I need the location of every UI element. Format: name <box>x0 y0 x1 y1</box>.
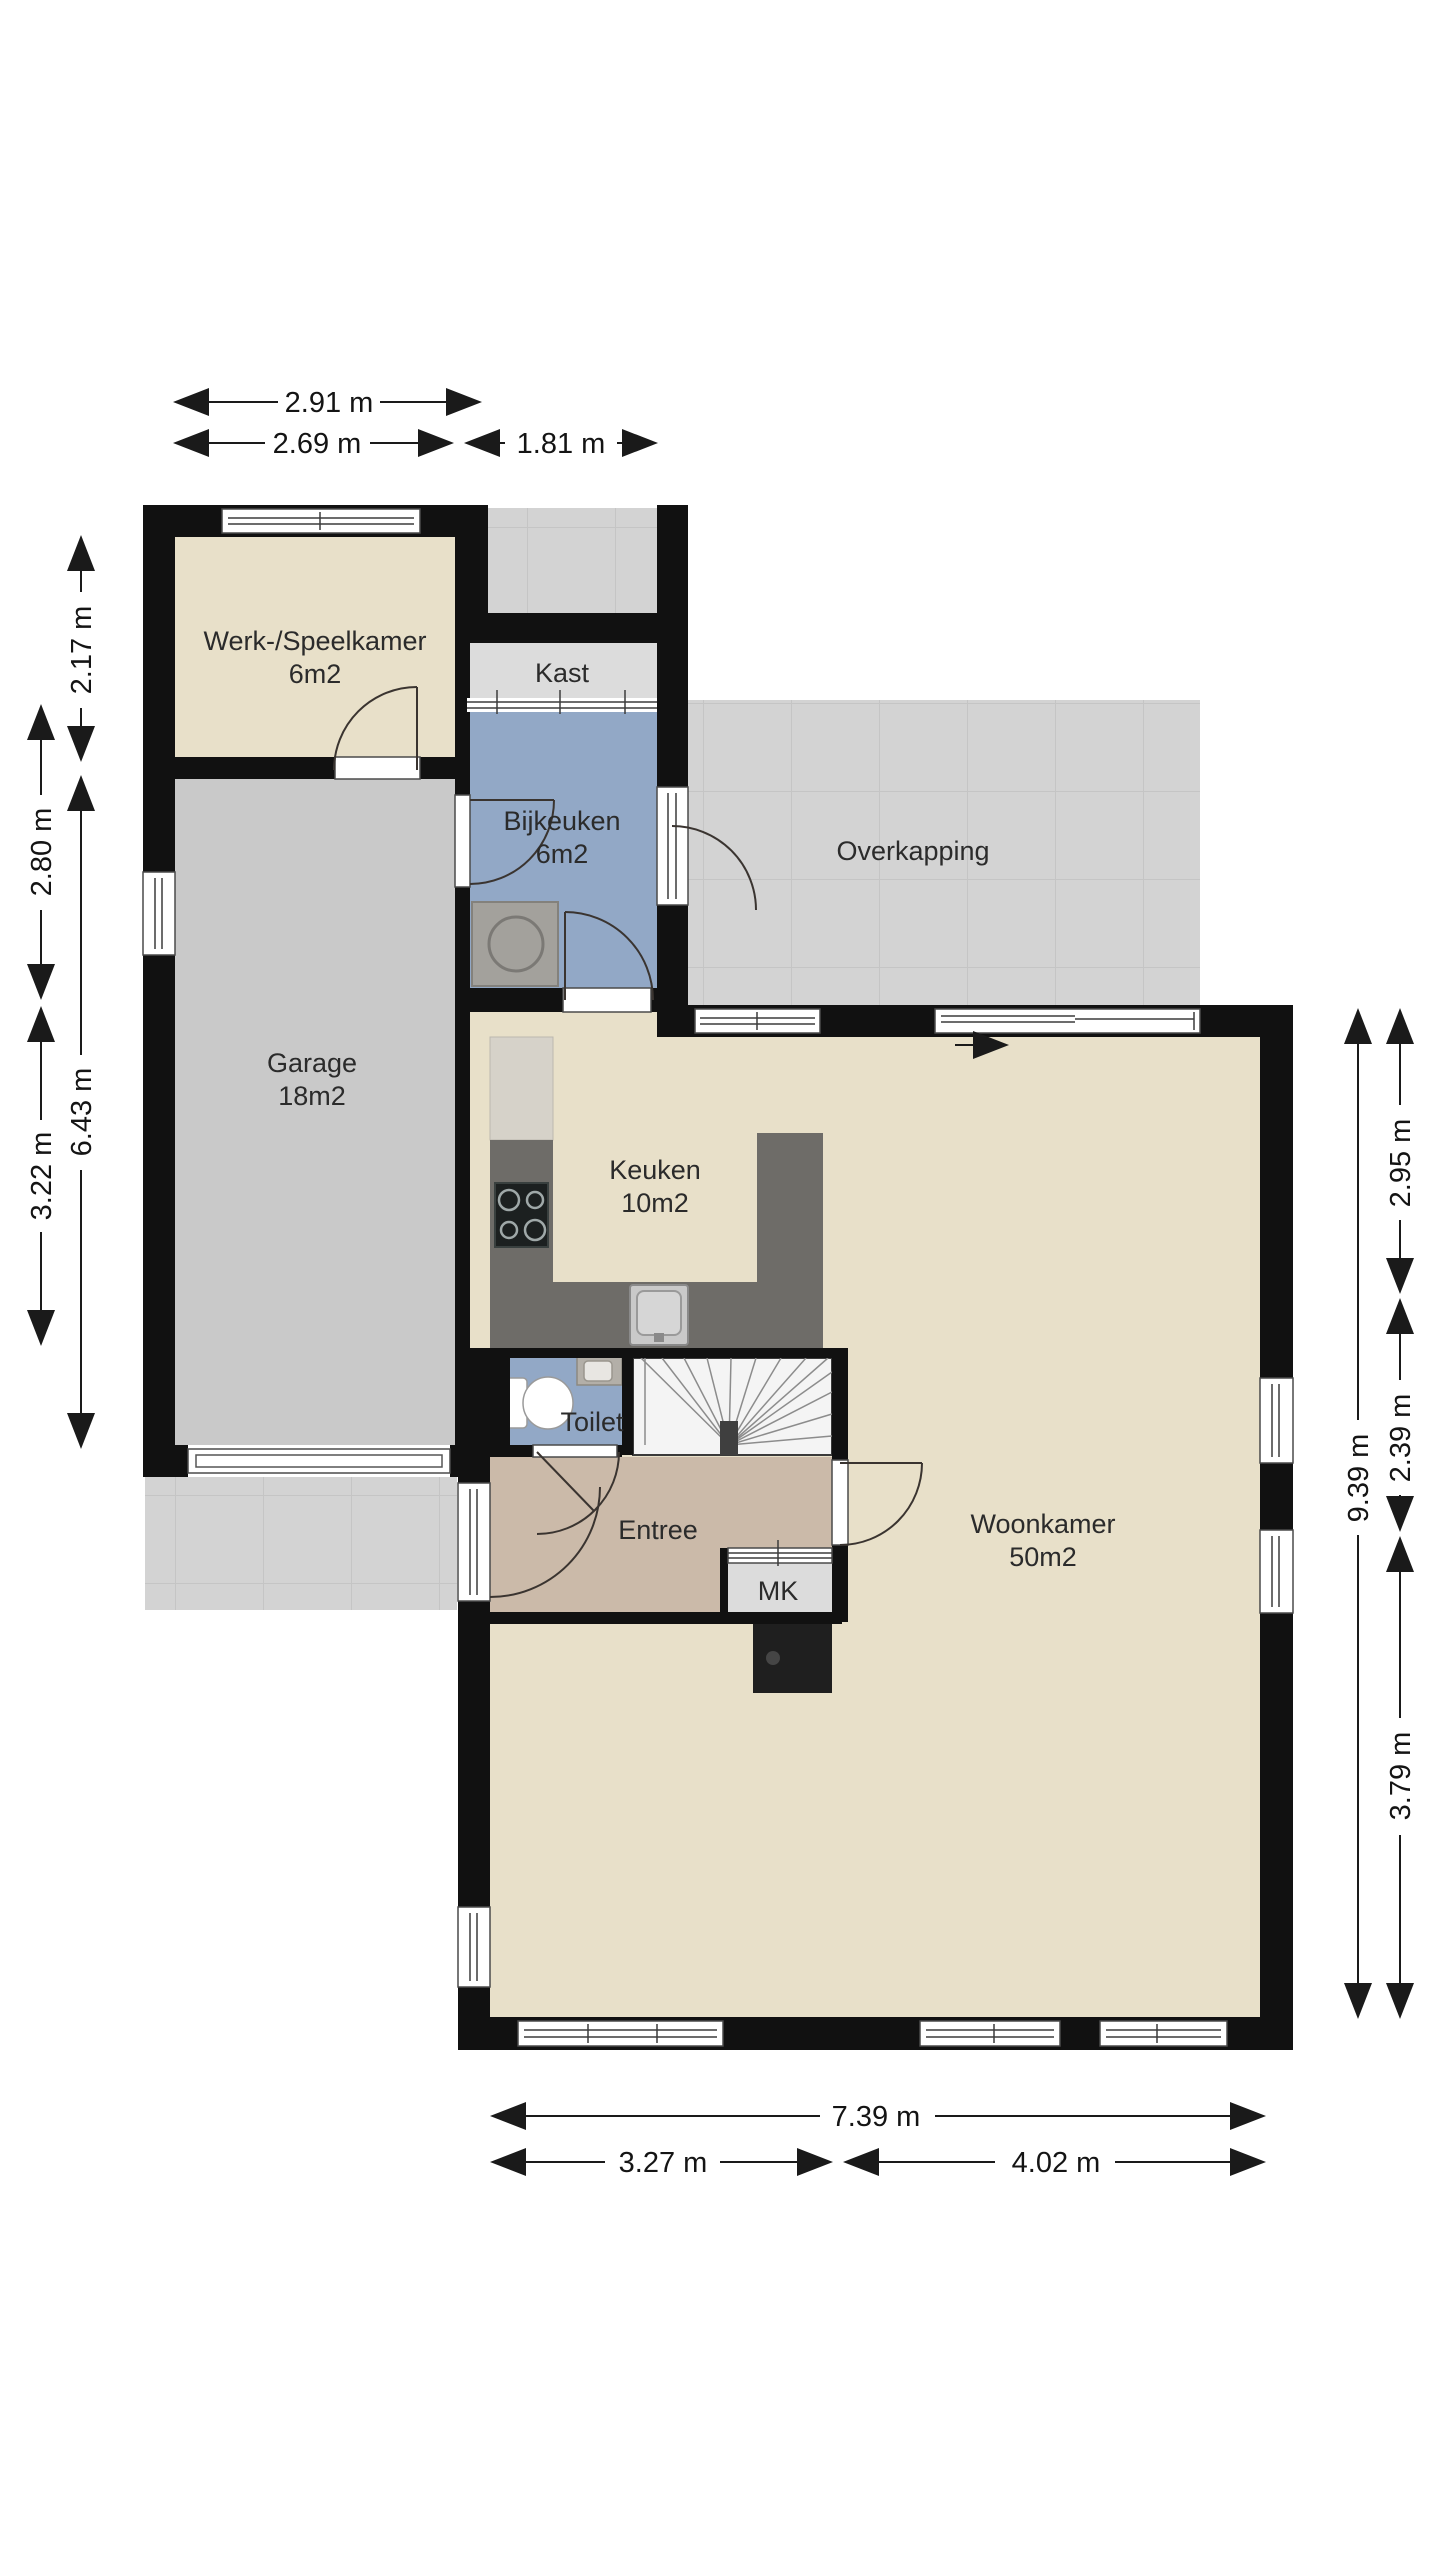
window-keuken-top <box>695 1009 820 1033</box>
door-bijkeuken-garage <box>455 795 470 887</box>
label-werkkamer-area: 6m2 <box>289 659 342 689</box>
label-bijkeuken-name: Bijkeuken <box>503 806 620 836</box>
patio-patch-tiles <box>488 508 657 613</box>
label-woonkamer-name: Woonkamer <box>970 1509 1115 1539</box>
label-woonkamer-area: 50m2 <box>1009 1542 1077 1572</box>
toilet-sink-icon <box>577 1357 622 1385</box>
kitchen-sink-icon <box>630 1285 688 1345</box>
stair-post <box>720 1421 738 1455</box>
door-toilet <box>533 1445 617 1457</box>
dim-bottom-739: 7.39 m <box>832 2101 921 2133</box>
window-werkkamer-top <box>222 509 420 533</box>
kitchen-cabinet <box>490 1037 553 1140</box>
label-overkapping: Overkapping <box>836 836 989 866</box>
dim-left-643: 6.43 m <box>66 1068 98 1157</box>
staircase <box>633 1358 832 1455</box>
dim-right-295: 2.95 m <box>1385 1119 1417 1208</box>
dim-right-939: 9.39 m <box>1343 1434 1375 1523</box>
door-werkkamer-garage <box>335 757 420 779</box>
label-bijkeuken-area: 6m2 <box>536 839 589 869</box>
label-keuken-area: 10m2 <box>621 1188 689 1218</box>
label-kast: Kast <box>535 658 590 688</box>
dim-right-379: 3.79 m <box>1385 1732 1417 1821</box>
window-woonkamer-right-1 <box>1260 1378 1293 1463</box>
door-bijkeuken-keuken <box>563 988 651 1012</box>
label-garage-area: 18m2 <box>278 1081 346 1111</box>
window-bottom-a <box>518 2021 723 2046</box>
dim-left-280: 2.80 m <box>26 808 58 897</box>
floorplan-drawing: Werk-/Speelkamer 6m2 Kast Bijkeuken 6m2 … <box>0 0 1440 2560</box>
label-garage-name: Garage <box>267 1048 357 1078</box>
label-mk: MK <box>758 1576 799 1606</box>
chimney-block <box>753 1622 832 1693</box>
label-werkkamer-name: Werk-/Speelkamer <box>203 626 426 656</box>
label-keuken-name: Keuken <box>609 1155 701 1185</box>
dim-top-291: 2.91 m <box>285 387 374 419</box>
driveway-tiles <box>145 1477 457 1610</box>
dim-top-269: 2.69 m <box>273 428 362 460</box>
door-entree-woonkamer <box>832 1460 848 1545</box>
garage-door <box>188 1449 450 1473</box>
dim-left-322: 3.22 m <box>26 1132 58 1221</box>
window-garage-left <box>143 872 175 955</box>
dim-left-217: 2.17 m <box>66 606 98 695</box>
label-entree: Entree <box>618 1515 698 1545</box>
floorplan-page: Werk-/Speelkamer 6m2 Kast Bijkeuken 6m2 … <box>0 0 1440 2560</box>
dim-top-181: 1.81 m <box>517 428 606 460</box>
window-bottom-c <box>1100 2021 1227 2046</box>
dim-bottom-402: 4.02 m <box>1012 2147 1101 2179</box>
dim-bottom-327: 3.27 m <box>619 2147 708 2179</box>
washer-icon <box>472 902 558 986</box>
label-toilet: Toilet <box>560 1407 624 1437</box>
stove-icon <box>495 1183 548 1247</box>
dim-right-239: 2.39 m <box>1385 1394 1417 1483</box>
window-woonkamer-left <box>458 1907 490 1987</box>
window-bottom-b <box>920 2021 1060 2046</box>
front-door <box>458 1483 490 1601</box>
floor-garage <box>175 779 455 1445</box>
window-woonkamer-right-2 <box>1260 1530 1293 1613</box>
door-bijkeuken-overkapping <box>657 787 688 905</box>
